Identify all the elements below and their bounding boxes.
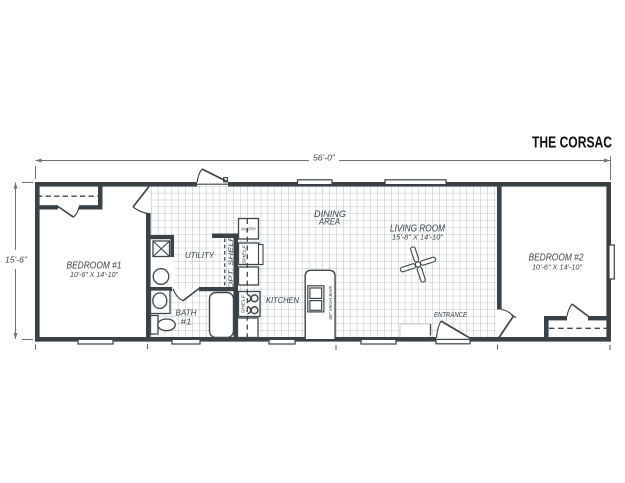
svg-text:BEDROOM #1: BEDROOM #1 [67,261,122,272]
svg-text:AREA: AREA [318,217,340,227]
svg-text:SHELF: SHELF [242,244,247,264]
svg-text:THE CORSAC: THE CORSAC [532,135,612,152]
svg-text:UTILITY: UTILITY [185,250,215,260]
svg-text:15'-6": 15'-6" [5,256,28,265]
svg-text:10'-6" X 14'-10": 10'-6" X 14'-10" [532,265,583,272]
svg-text:15'-8" X 14'-10": 15'-8" X 14'-10" [392,235,444,242]
svg-text:36" HIGH BAR: 36" HIGH BAR [328,285,334,320]
svg-text:10'-6" X 14'-10": 10'-6" X 14'-10" [70,272,119,279]
svg-text:SHELF: SHELF [241,294,246,314]
svg-text:PANTRY: PANTRY [241,227,257,232]
svg-text:KITCHEN: KITCHEN [266,295,300,305]
svg-text:56'-0": 56'-0" [313,154,336,163]
svg-text:LIVING ROOM: LIVING ROOM [390,224,446,235]
svg-text:OPT. SHELF: OPT. SHELF [229,236,235,289]
svg-text:BEDROOM #2: BEDROOM #2 [529,253,584,264]
svg-text:ENTRANCE: ENTRANCE [434,312,467,319]
svg-text:#1: #1 [181,317,192,327]
